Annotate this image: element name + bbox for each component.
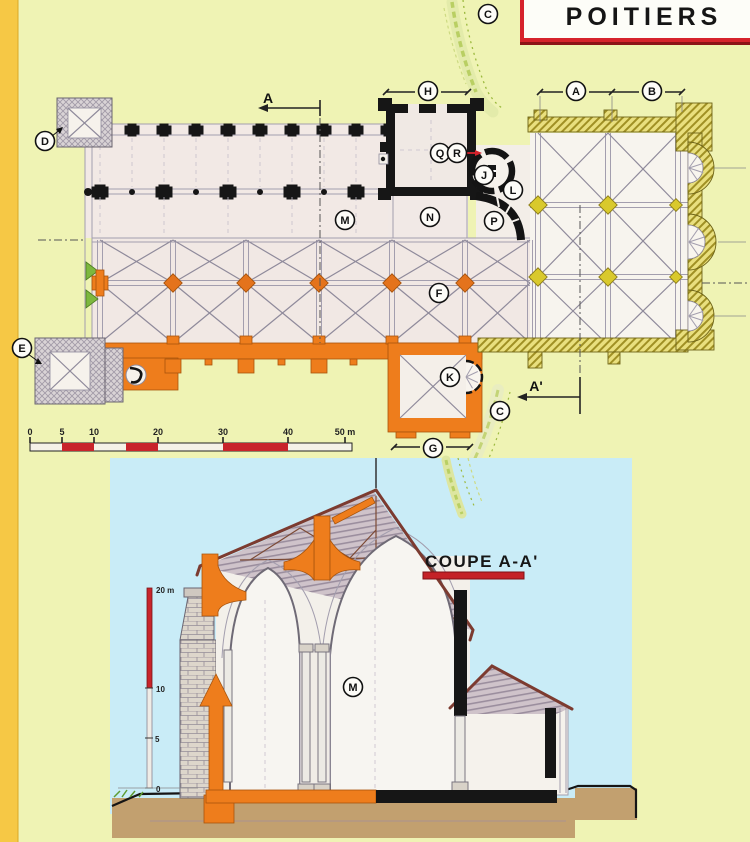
- svg-text:M: M: [340, 215, 349, 227]
- section-view: COUPE A-A' 20 m1050: [110, 458, 637, 838]
- svg-text:COUPE A-A': COUPE A-A': [425, 552, 539, 571]
- scale-tick-label: 30: [218, 427, 228, 437]
- svg-text:E: E: [18, 343, 25, 355]
- svg-text:C: C: [496, 406, 504, 418]
- section-scale-label: 0: [156, 785, 161, 794]
- marker-F: F: [430, 284, 449, 303]
- scale-tick-label: 20: [153, 427, 163, 437]
- scale-tick-label: 10: [89, 427, 99, 437]
- marker-C: C: [479, 5, 498, 24]
- floor-orange: [206, 790, 376, 803]
- svg-text:C: C: [484, 9, 492, 21]
- marker-B: B: [643, 82, 662, 101]
- marker-L: L: [504, 181, 523, 200]
- floor-black: [376, 790, 557, 803]
- northwest-tower: [52, 98, 112, 147]
- marker-M: M: [344, 678, 363, 697]
- section-scale-label: 10: [156, 685, 165, 694]
- architectural-plate-poitiers: A A' 051020304050 m: [0, 0, 750, 842]
- svg-text:B: B: [648, 86, 656, 98]
- scale-tick-label: 5: [59, 427, 64, 437]
- svg-text:J: J: [481, 170, 487, 182]
- page-title: POITIERS: [566, 3, 723, 32]
- marker-A: A: [567, 82, 586, 101]
- svg-text:A': A': [529, 378, 542, 394]
- scale-tick-label: 50 m: [335, 427, 356, 437]
- section-scale-label: 20 m: [156, 586, 174, 595]
- south-porch: [388, 343, 482, 438]
- marker-G: G: [424, 439, 443, 458]
- southwest-tower: [28, 338, 123, 404]
- marker-H: H: [419, 82, 438, 101]
- marker-M: M: [336, 211, 355, 230]
- title-plate: POITIERS: [520, 0, 750, 42]
- svg-text:H: H: [424, 86, 432, 98]
- svg-text:K: K: [446, 372, 454, 384]
- section-title: COUPE A-A': [423, 552, 539, 579]
- svg-text:P: P: [490, 216, 497, 228]
- svg-text:D: D: [41, 136, 49, 148]
- svg-text:G: G: [429, 443, 438, 455]
- svg-text:A: A: [263, 90, 273, 106]
- left-gold-stripe: [0, 0, 18, 842]
- svg-text:F: F: [436, 288, 443, 300]
- marker-K: K: [441, 368, 460, 387]
- svg-text:N: N: [426, 212, 434, 224]
- marker-E: E: [13, 339, 32, 358]
- svg-text:L: L: [510, 185, 517, 197]
- section-scale-label: 5: [155, 735, 160, 744]
- marker-Q: Q: [431, 144, 450, 163]
- svg-text:R: R: [453, 148, 461, 160]
- marker-N: N: [421, 208, 440, 227]
- svg-text:Q: Q: [436, 148, 445, 160]
- marker-J: J: [475, 166, 494, 185]
- svg-text:A: A: [572, 86, 580, 98]
- scale-tick-label: 0: [27, 427, 32, 437]
- drawing: A A' 051020304050 m: [0, 0, 750, 842]
- svg-text:M: M: [348, 682, 357, 694]
- scale-tick-label: 40: [283, 427, 293, 437]
- marker-P: P: [485, 212, 504, 231]
- marker-R: R: [448, 144, 467, 163]
- marker-C: C: [491, 402, 510, 421]
- marker-D: D: [36, 132, 55, 151]
